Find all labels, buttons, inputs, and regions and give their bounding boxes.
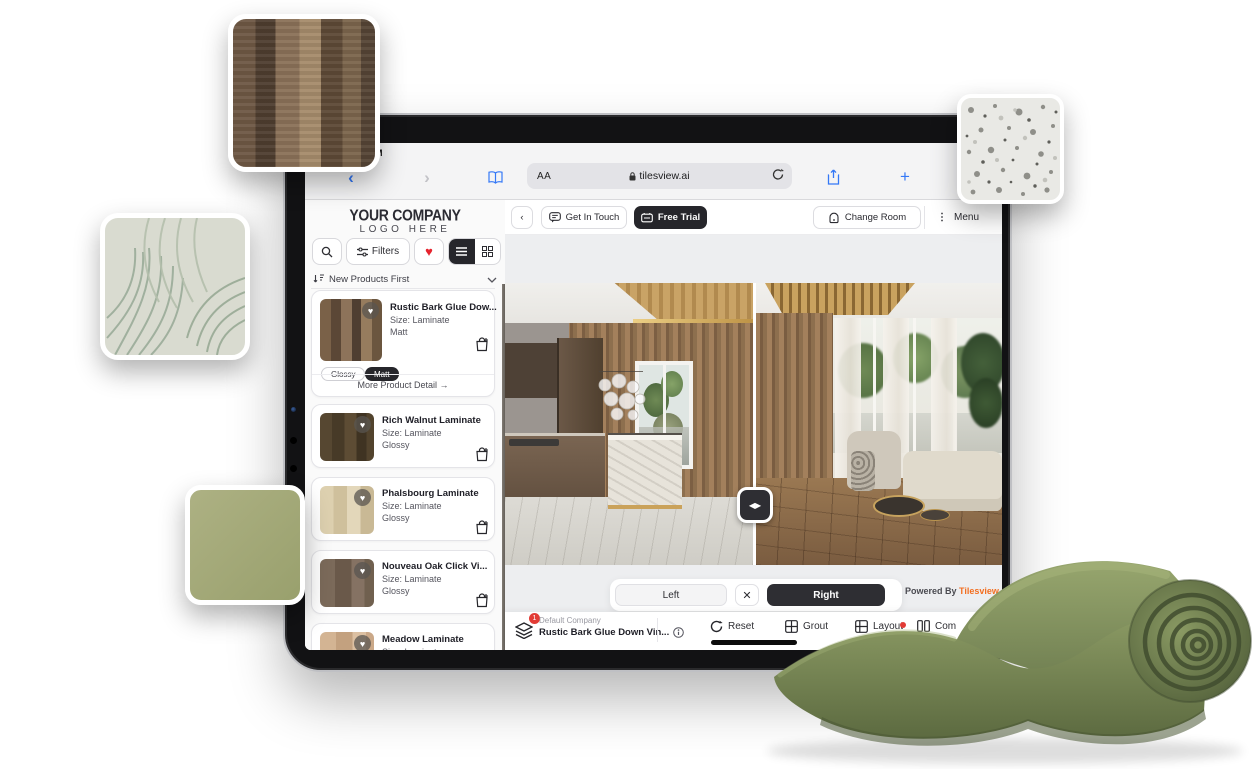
product-card-rustic-bark[interactable]: ♥ Rustic Bark Glue Dow... Size: Laminate…: [311, 290, 495, 397]
sidebar-divider: [502, 284, 505, 650]
front-camera: [291, 407, 296, 412]
favorite-icon[interactable]: ♥: [354, 416, 371, 433]
chat-icon: [549, 212, 561, 223]
left-side-button[interactable]: Left: [615, 584, 727, 606]
potted-plant: [961, 333, 1002, 453]
filters-button[interactable]: Filters: [346, 238, 410, 265]
favorite-icon[interactable]: ♥: [362, 302, 379, 319]
heart-icon: ♥: [425, 244, 433, 259]
chevron-down-icon: [487, 277, 497, 283]
favorite-icon[interactable]: ♥: [354, 635, 371, 650]
more-product-detail-link[interactable]: More Product Detail →: [312, 374, 494, 390]
toolbar-divider: [657, 618, 658, 642]
menu-button[interactable]: ⋮ Menu: [937, 206, 979, 229]
free-trial-button[interactable]: Free Trial: [634, 206, 707, 229]
comparison-slider-handle[interactable]: ◀▶: [737, 487, 773, 523]
room-comparison-viewer[interactable]: ◀▶ ✓ Floor: [505, 283, 1002, 565]
leaf-wallpaper-swatch: [100, 213, 250, 360]
favorites-button[interactable]: ♥: [414, 238, 444, 265]
add-to-cart-icon[interactable]: [475, 593, 489, 608]
product-swatch[interactable]: ♥: [320, 413, 374, 461]
green-solid-swatch: [185, 485, 305, 605]
add-to-cart-icon[interactable]: [475, 337, 489, 352]
arrow-right-icon: →: [440, 380, 449, 390]
product-swatch[interactable]: ♥: [320, 486, 374, 534]
lock-icon: [629, 172, 636, 181]
visualizer-header: ‹ Get In Touch Free Trial Change Room: [505, 200, 1002, 235]
sort-dropdown[interactable]: New Products First: [313, 272, 497, 287]
add-to-cart-icon[interactable]: [475, 447, 489, 462]
room-pane-left[interactable]: [505, 283, 755, 565]
reload-icon[interactable]: [772, 168, 784, 181]
product-swatch[interactable]: ♥: [320, 559, 374, 607]
company-name: Default Company: [539, 616, 601, 625]
url-text: tilesview.ai: [639, 170, 689, 182]
collapse-sidebar-button[interactable]: ‹: [511, 206, 533, 229]
product-list[interactable]: ♥ Rustic Bark Glue Dow... Size: Laminate…: [305, 290, 505, 650]
list-view-button[interactable]: [449, 239, 475, 264]
bookmarks-icon[interactable]: [485, 167, 505, 187]
change-room-button[interactable]: Change Room: [813, 206, 921, 229]
layers-icon: [515, 622, 533, 639]
product-sidebar: YOUR COMPANY LOGO HERE Filters ♥: [305, 200, 505, 650]
product-card-rich-walnut[interactable]: ♥ Rich Walnut Laminate Size: Laminate Gl…: [311, 404, 495, 468]
share-icon[interactable]: [823, 167, 843, 187]
wood-plank-swatch: [228, 14, 380, 172]
filter-sliders-icon: [357, 247, 368, 257]
product-swatch[interactable]: ♥: [320, 299, 382, 361]
search-icon: [321, 246, 333, 258]
info-icon[interactable]: [673, 627, 684, 638]
green-carpet-roll: [760, 541, 1253, 769]
forward-icon[interactable]: ›: [417, 167, 437, 187]
company-logo: YOUR COMPANY LOGO HERE: [305, 207, 505, 235]
applied-product-name[interactable]: Rustic Bark Glue Down Vin...: [539, 627, 684, 638]
search-button[interactable]: [312, 238, 342, 265]
room-icon: [828, 212, 840, 224]
list-icon: [456, 247, 467, 256]
grid-view-button[interactable]: [475, 239, 501, 264]
header-divider: [924, 206, 925, 229]
room-pane-right[interactable]: [755, 283, 1002, 565]
sort-icon: [313, 274, 324, 285]
get-in-touch-button[interactable]: Get In Touch: [541, 206, 627, 229]
address-bar[interactable]: AA tilesview.ai: [527, 163, 792, 189]
product-swatch[interactable]: ♥: [320, 632, 374, 650]
terrazzo-swatch: [957, 94, 1064, 204]
kebab-menu-icon: ⋮: [937, 212, 948, 223]
product-card-nouveau-oak[interactable]: ♥ Nouveau Oak Click Vi... Size: Laminate…: [311, 550, 495, 614]
new-tab-icon[interactable]: +: [895, 167, 915, 187]
trial-card-icon: [641, 212, 653, 223]
product-card-phalsbourg[interactable]: ♥ Phalsbourg Laminate Size: Laminate Glo…: [311, 477, 495, 541]
sensor-dot: [290, 465, 297, 472]
add-to-cart-icon[interactable]: [475, 520, 489, 535]
close-compare-button[interactable]: ✕: [735, 584, 759, 606]
sensor-dot: [290, 437, 297, 444]
chandelier: [593, 371, 649, 423]
reset-icon: [710, 620, 723, 633]
product-card-meadow[interactable]: ♥ Meadow Laminate Size: Laminate: [311, 623, 495, 650]
safari-toolbar: PM ‹ › AA tilesview.ai +: [305, 143, 1002, 200]
grid-icon: [482, 246, 493, 257]
reset-button[interactable]: Reset: [710, 620, 754, 633]
favorite-icon[interactable]: ♥: [354, 562, 371, 579]
view-toggle[interactable]: [448, 238, 501, 265]
favorite-icon[interactable]: ♥: [354, 489, 371, 506]
